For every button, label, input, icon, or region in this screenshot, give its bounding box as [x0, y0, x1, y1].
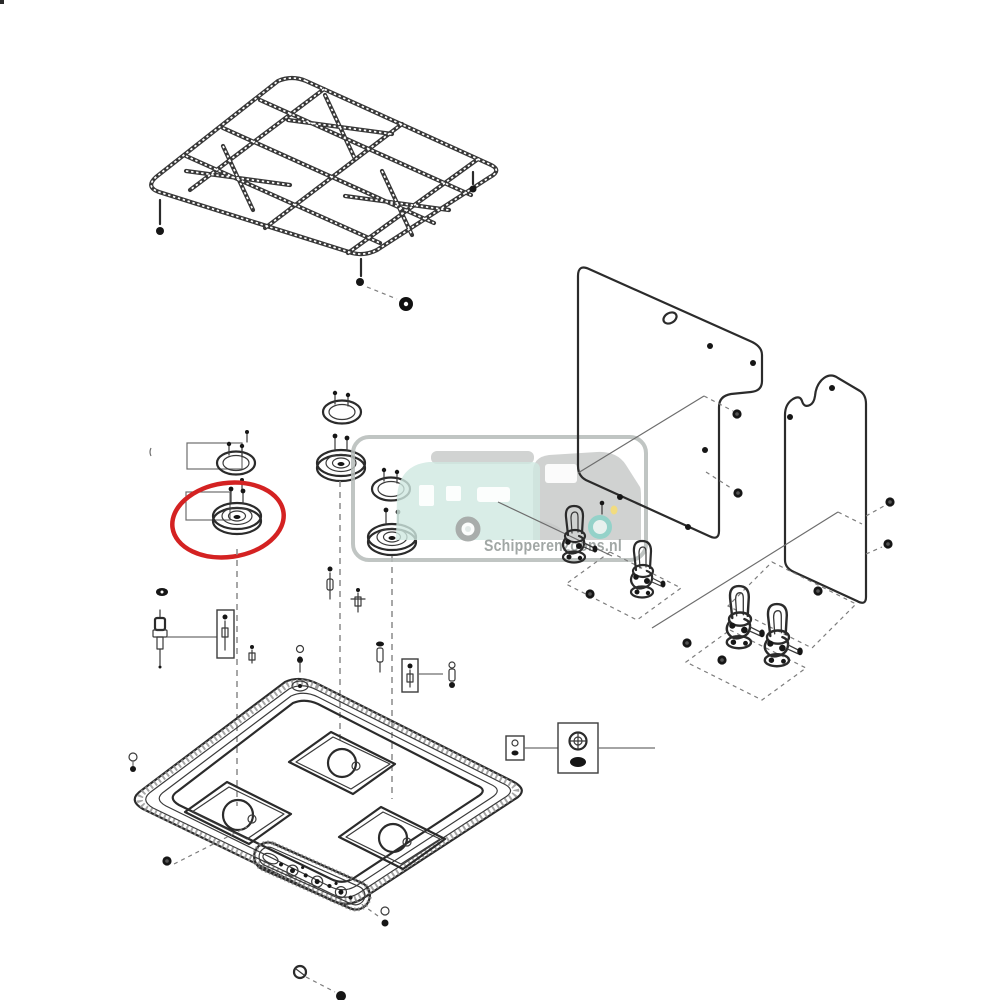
- caravan-window: [446, 486, 461, 501]
- main-hob-tray: [129, 657, 522, 1000]
- grate-foot: [356, 278, 364, 286]
- injector-jet: [351, 588, 365, 612]
- car-wheel: [591, 518, 610, 537]
- scan-tick: [150, 448, 151, 456]
- burner-cap-left: [213, 487, 261, 534]
- watermark-text: Schipperenzoons.nl: [484, 537, 622, 555]
- caravan-window: [419, 485, 434, 506]
- tray-outer-rim: [135, 679, 522, 904]
- injector-jet: [249, 645, 255, 663]
- car-headlight: [611, 506, 618, 515]
- lid-hinge-bracket-2: [631, 541, 666, 598]
- burner-recess-middle: [289, 732, 395, 794]
- callout-box-small-parts: [506, 736, 524, 760]
- car-window: [545, 464, 577, 483]
- lid-hinge-bracket-4: [765, 604, 803, 666]
- exploded-parts-diagram: Schipperenzoons.nl: [0, 0, 1000, 1000]
- grate-foot-grommet: [399, 297, 413, 311]
- callout-box-jet: [402, 659, 418, 692]
- alignment-dashed-lines: [237, 481, 392, 806]
- scan-speck: [0, 0, 4, 4]
- tray-floor: [173, 701, 483, 882]
- fixing-screw: [449, 662, 455, 688]
- grate-foot: [156, 227, 164, 235]
- pan-support-grate: [151, 78, 496, 254]
- callout-box-igniter: [217, 610, 234, 658]
- injector-jet: [376, 642, 384, 673]
- grate-foot: [470, 186, 477, 193]
- burner-assembly-middle: [317, 391, 365, 481]
- side-panel-small: [785, 376, 866, 603]
- caravan-wheel-hub: [465, 526, 471, 532]
- burner-trim-ring-middle: [323, 391, 361, 424]
- lid-hinge-bracket-3: [727, 586, 765, 648]
- caravan-window: [477, 487, 510, 502]
- exploded-parts-diagram-page: Schipperenzoons.nl: [0, 0, 1000, 1000]
- callout-box-burner-base: [558, 723, 598, 773]
- igniter-electrode: [153, 588, 168, 669]
- panel-hole: [661, 310, 678, 326]
- injector-jet: [327, 567, 333, 600]
